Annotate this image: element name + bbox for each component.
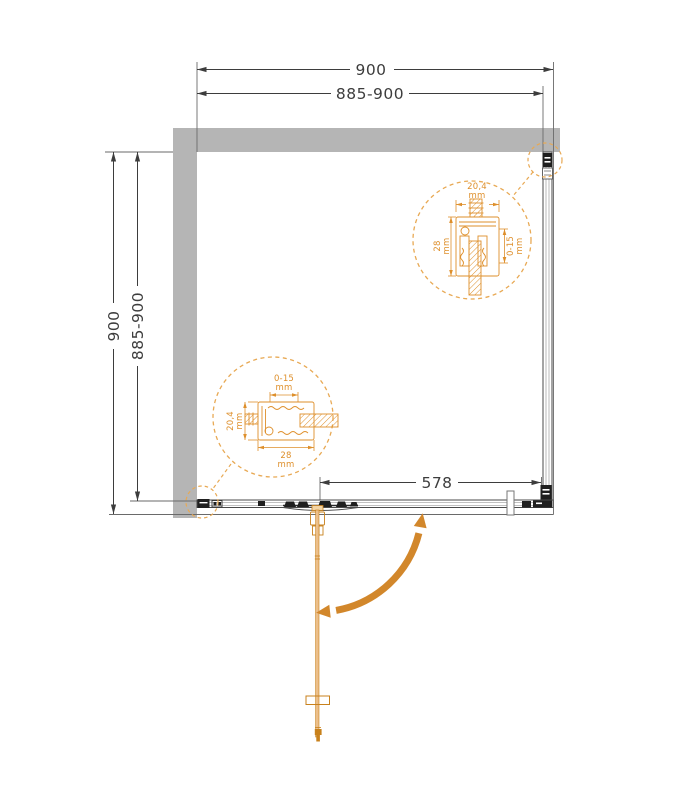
dim-left-inner-label: 885-900 (129, 292, 147, 360)
door-bottom-fitting (316, 735, 320, 742)
arrowhead-right (534, 91, 544, 96)
arrowhead-left (320, 480, 330, 485)
pivot-door-open (306, 506, 330, 742)
panel-outline (543, 152, 552, 505)
wall-end-bracket (198, 499, 210, 508)
door-swing-arrow (316, 513, 427, 618)
detail-view-top-right: 20,4 mm 28 mm 0-15 mm (413, 181, 531, 299)
detail-height-unit: mm (235, 413, 245, 430)
bracket-slot (545, 157, 551, 159)
wall-screw-hatched (245, 414, 258, 424)
arrowhead-left (197, 67, 207, 72)
detail-height-unit: mm (442, 238, 452, 255)
dim-left-outer-label: 900 (105, 310, 123, 341)
detail-adjust-unit: mm (515, 238, 525, 255)
rail-clip (258, 501, 265, 506)
detail-width-unit: mm (469, 191, 486, 201)
arrowhead-top (135, 152, 140, 162)
bracket-slot (543, 493, 550, 495)
top-wall-bracket (543, 153, 553, 167)
swing-arrowhead-up (414, 513, 427, 528)
rail-outline (197, 500, 553, 508)
fitting-block (214, 502, 217, 506)
bracket-slot (200, 502, 208, 503)
glass-edge-hatched (469, 241, 481, 295)
bottom-rail (197, 491, 553, 515)
roller-block (284, 502, 296, 508)
door-glass-panel (316, 510, 319, 737)
wall-left (173, 128, 197, 518)
door-hinge-clamp (319, 512, 325, 525)
dimension-left-outer: 900 (105, 152, 123, 514)
door-hinge-clamp (319, 526, 323, 535)
door-bottom-fitting (315, 729, 322, 735)
dim-door-opening-label: 578 (421, 474, 452, 492)
arrowhead-bottom (135, 492, 140, 502)
glass-edge-hatched (300, 414, 338, 427)
dimension-top-outer: 900 (197, 61, 553, 79)
leader-top-right (513, 172, 533, 196)
corner-fitting (522, 501, 531, 508)
corner-bracket (533, 501, 552, 508)
bracket-slot (545, 161, 551, 163)
dimension-door-opening: 578 (320, 474, 541, 492)
dimension-top-inner: 885-900 (197, 85, 543, 103)
leader-bottom-left (212, 464, 231, 490)
arrowhead-right (532, 480, 542, 485)
arrowhead-bottom (111, 505, 116, 515)
bracket-slot (543, 489, 550, 491)
swing-arc (336, 533, 419, 610)
dimension-left-inner: 885-900 (129, 152, 147, 501)
bracket-slot (536, 503, 542, 505)
shower-enclosure-plan: 900 885-900 900 885-900 578 (0, 0, 697, 800)
roller-block (297, 502, 309, 508)
dim-top-outer-label: 900 (355, 61, 386, 79)
support-bracket (507, 491, 514, 515)
arrowhead-right (544, 67, 554, 72)
detail-adjust-unit: mm (276, 383, 293, 393)
technical-drawing-canvas: 900 885-900 900 885-900 578 (0, 0, 697, 800)
detail-width-unit: mm (278, 460, 295, 470)
wall-top (173, 128, 560, 152)
right-glass-panel (541, 152, 553, 505)
detail-view-bottom-left: 0-15 mm 20,4 mm 28 mm (213, 357, 338, 477)
dim-top-inner-label: 885-900 (336, 85, 404, 103)
arrowhead-left (197, 91, 207, 96)
arrowhead-top (111, 152, 116, 162)
